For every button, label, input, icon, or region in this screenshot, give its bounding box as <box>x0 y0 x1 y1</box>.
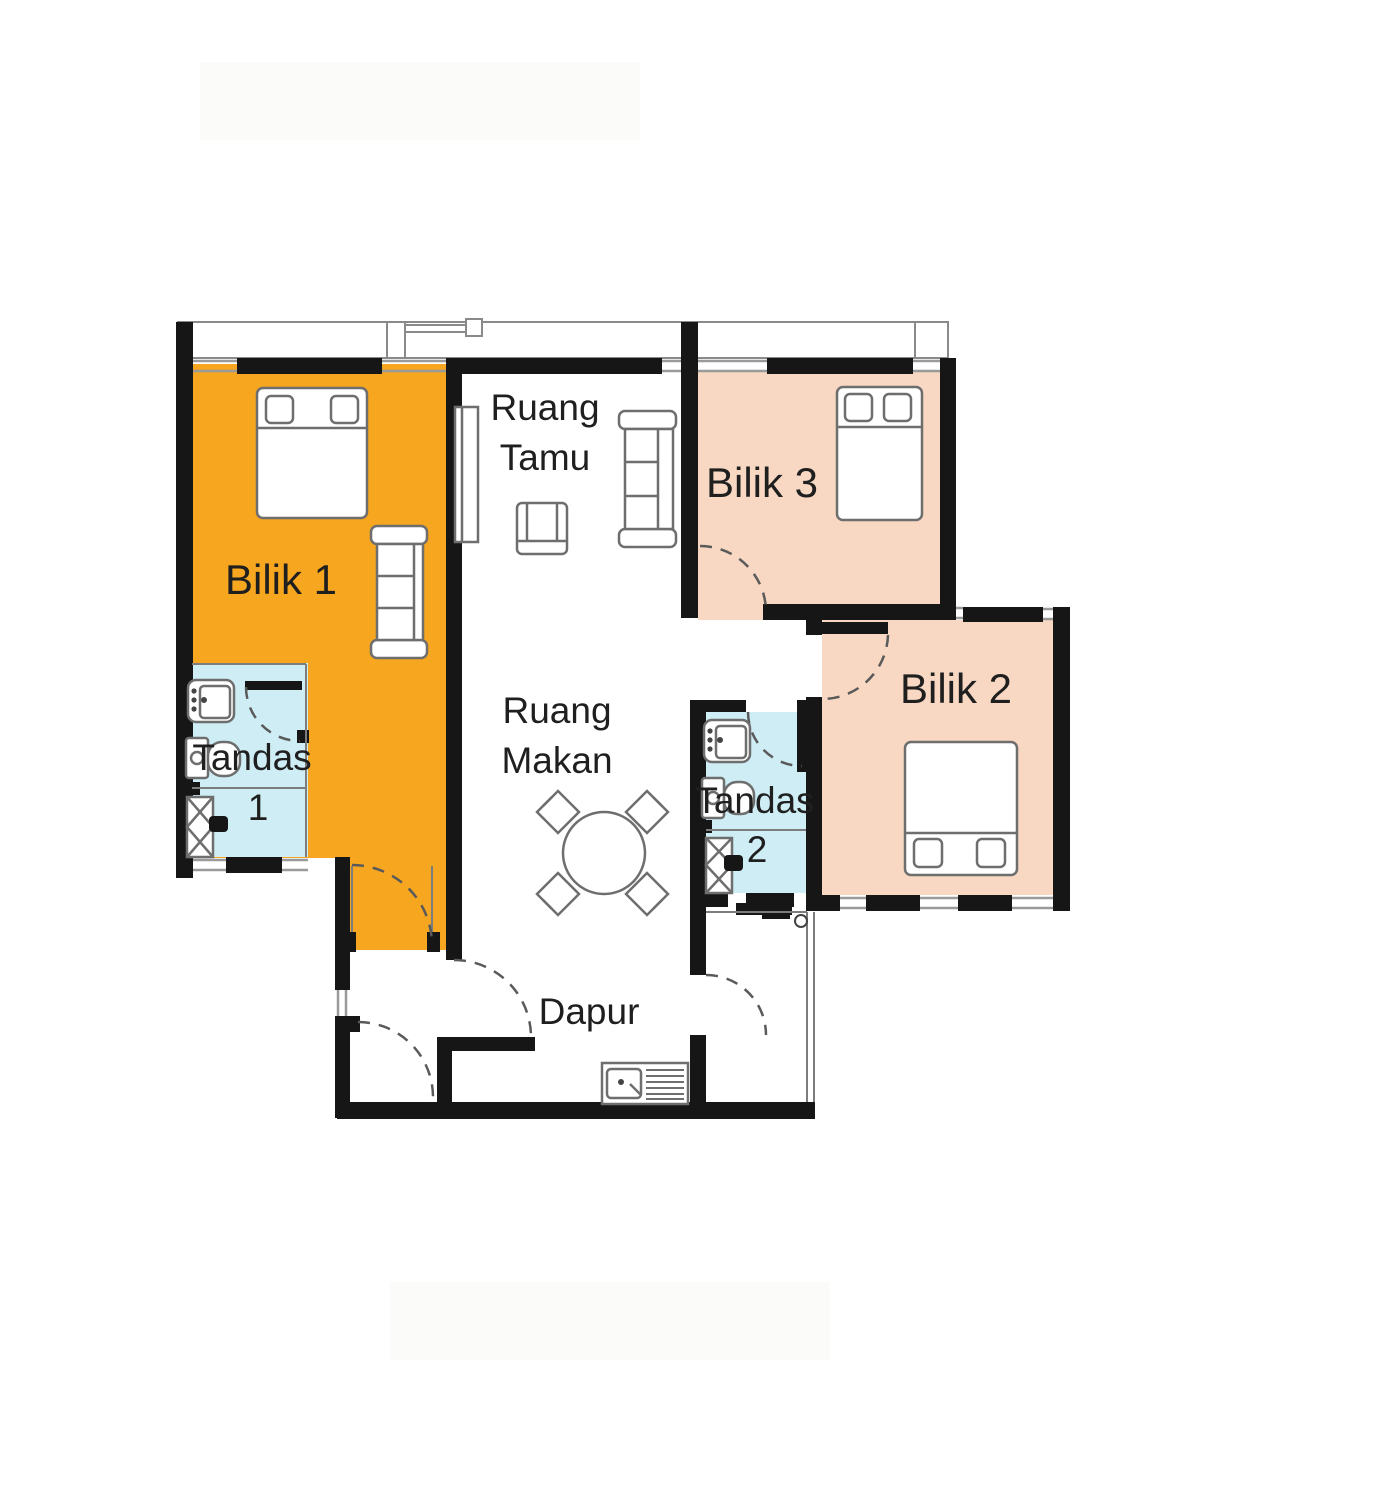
tandas2-door-leaf <box>797 700 807 772</box>
kitchen-counter-wall <box>452 1037 535 1051</box>
tandas1-sink-icon <box>188 680 234 722</box>
aircond-unit-icon <box>466 319 482 336</box>
bilik3-bed-icon <box>837 387 922 520</box>
door-knob-icon <box>795 915 807 927</box>
window-ruangtamu <box>662 361 681 371</box>
wetkitchen-door-arc <box>706 975 766 1035</box>
wall-top-bilik1 <box>237 358 382 374</box>
wall-dapur-stub <box>437 1037 452 1107</box>
wall-tandas2-bottom-a <box>706 893 728 907</box>
pillow-icon <box>266 396 293 423</box>
ruang-tamu-label-line2: Tamu <box>500 437 590 478</box>
tandas2-sink-icon <box>704 720 750 762</box>
pillow-icon <box>845 394 872 421</box>
ruang-tamu-label-line1: Ruang <box>490 387 599 428</box>
floor-plan: Bilik 1 Bilik 3 Bilik 2 Ruang Tamu Ruang… <box>0 0 1383 1500</box>
bilik1-label: Bilik 1 <box>225 556 337 603</box>
wall-bilik2-bottom-b <box>866 895 920 911</box>
bilik1-bed-icon <box>257 388 367 518</box>
wall-bilik2-top-inner <box>822 622 888 634</box>
alcove-door-post <box>350 1016 360 1032</box>
bilik2-bed-icon <box>905 742 1017 875</box>
wall-bottom-outer <box>337 1102 815 1119</box>
tv-console-icon <box>455 407 478 542</box>
balcony-outline <box>178 322 948 358</box>
balcony-strip <box>178 319 948 358</box>
watermark-bottom <box>390 1282 830 1360</box>
dapur-label: Dapur <box>539 991 640 1032</box>
wall-bilik3-right <box>940 358 956 620</box>
wall-bilik2-door-post <box>806 620 822 635</box>
bilik1-door-post-right <box>427 932 440 952</box>
wall-top-ruangtamu <box>446 358 662 374</box>
bilik3-label: Bilik 3 <box>706 459 818 506</box>
wall-bilik2-bottom-c <box>958 895 1012 911</box>
kitchen-sink-icon <box>602 1063 688 1104</box>
window-bilik3-left <box>698 361 767 371</box>
armchair-icon <box>517 503 567 554</box>
tandas1-door-leaf <box>245 681 302 690</box>
ruang-makan-label-line2: Makan <box>501 740 612 781</box>
window-bilik3-right <box>913 361 940 371</box>
aircond-bracket <box>405 325 467 332</box>
wall-ruangtamu-right <box>681 322 698 618</box>
watermark-top <box>200 62 640 140</box>
tandas2-label-line2: 2 <box>747 829 768 870</box>
wall-wetkitchen-top <box>736 903 792 915</box>
window-corridor <box>335 990 350 1016</box>
tandas2-divider-stub <box>690 820 712 833</box>
balcony-divider <box>387 322 405 358</box>
wall-top-bilik3 <box>767 358 913 374</box>
bilik1-sofa-icon <box>371 526 427 658</box>
tandas1-label-line1: Tandas <box>192 737 311 778</box>
tandas1-label-line2: 1 <box>248 787 269 828</box>
wall-bilik2-bottom-a <box>806 895 840 911</box>
wall-corridor-left <box>335 857 350 1118</box>
dining-table-icon <box>537 791 668 915</box>
floor-plan-canvas: Bilik 1 Bilik 3 Bilik 2 Ruang Tamu Ruang… <box>0 0 1383 1500</box>
dapur-door-arc <box>454 960 531 1037</box>
ruangtamu-sofa-icon <box>619 411 676 547</box>
ruang-makan-label-line1: Ruang <box>502 690 611 731</box>
alcove-door-arc <box>358 1022 433 1097</box>
wall-tandas1-bottom <box>226 857 282 873</box>
wall-bilik3-bottom <box>763 604 956 620</box>
pillow-icon <box>977 839 1005 867</box>
tandas2-label-line1: Tandas <box>695 780 814 821</box>
pillow-icon <box>884 394 911 421</box>
wall-bilik2-right <box>1053 607 1070 911</box>
pillow-icon <box>914 839 942 867</box>
pillow-icon <box>331 396 358 423</box>
bilik2-label: Bilik 2 <box>900 665 1012 712</box>
wall-bilik2-top <box>963 607 1043 622</box>
bilik1-door-post-left <box>346 932 356 952</box>
